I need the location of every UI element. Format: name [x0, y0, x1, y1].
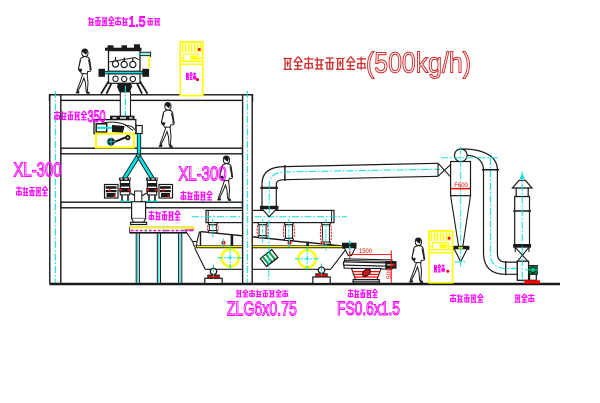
- svg-text:XL-300: XL-300: [179, 163, 227, 186]
- svg-text:350: 350: [88, 107, 106, 126]
- svg-text:1500: 1500: [359, 248, 372, 255]
- svg-text:1.5: 1.5: [129, 14, 146, 31]
- svg-text:(500kg/h): (500kg/h): [366, 48, 471, 80]
- svg-text:FS0.6x1.5: FS0.6x1.5: [337, 298, 400, 320]
- svg-text:500: 500: [386, 268, 393, 279]
- svg-text:XL-300: XL-300: [14, 159, 62, 182]
- svg-text:ZLG6x0.75: ZLG6x0.75: [227, 297, 297, 320]
